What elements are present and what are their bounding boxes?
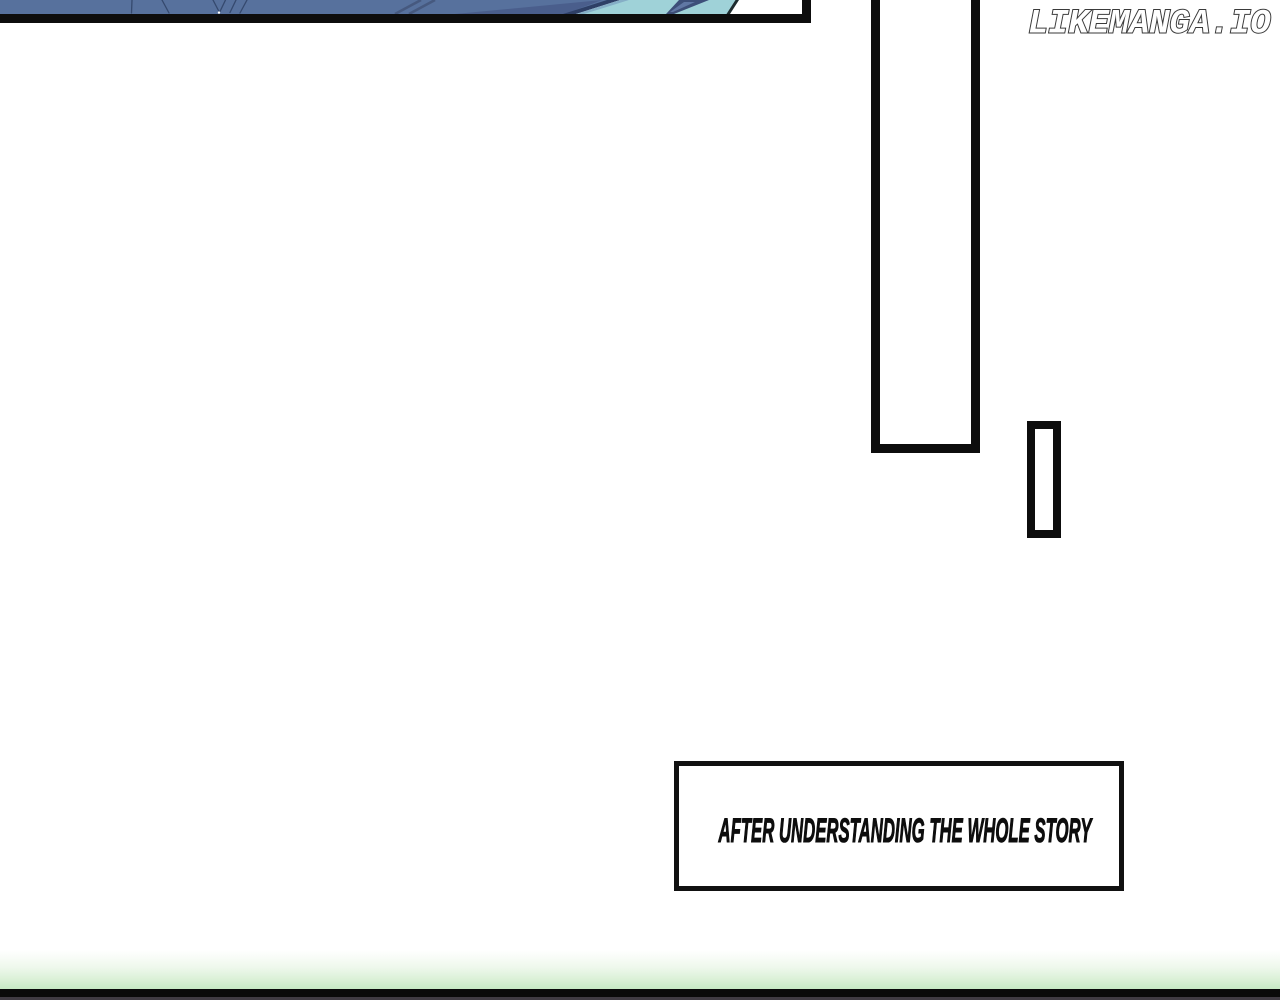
svg-text:AFTER UNDERSTANDING THE WHOLE: AFTER UNDERSTANDING THE WHOLE STORY [718, 812, 1093, 850]
svg-text:LIKEMANGA.IO: LIKEMANGA.IO [1028, 6, 1271, 44]
